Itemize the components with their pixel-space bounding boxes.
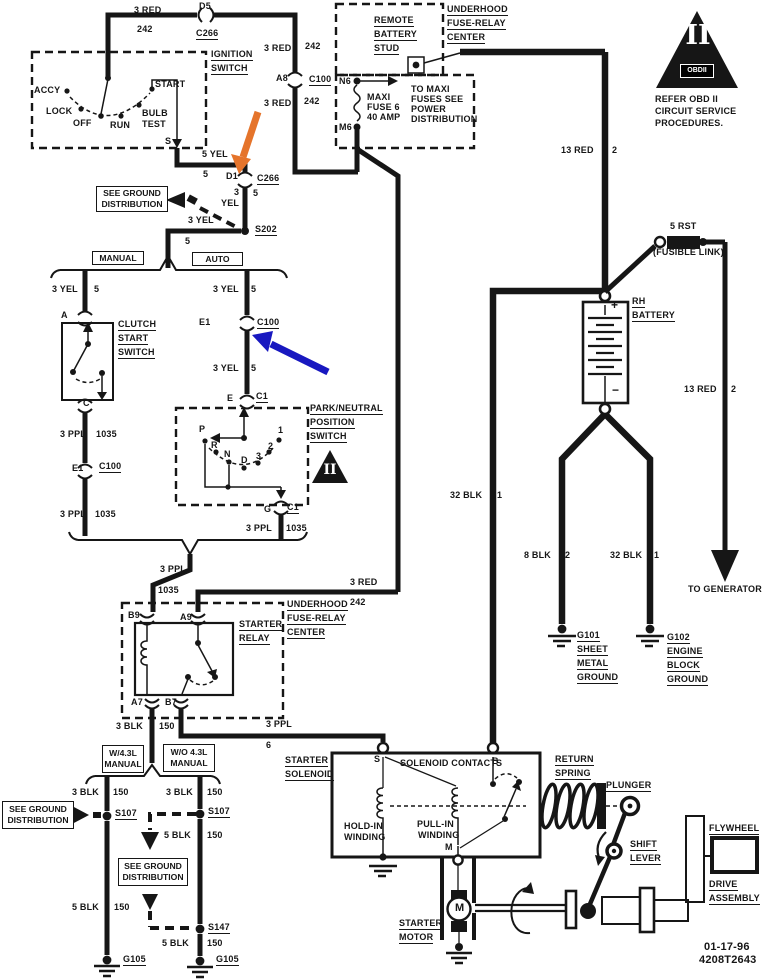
wire-2-2: 2 bbox=[731, 384, 736, 394]
lever-label-1: SHIFT bbox=[630, 839, 657, 851]
wire-242-top: 242 bbox=[137, 24, 153, 34]
wire-150-a7: 150 bbox=[159, 721, 175, 731]
return-spring-plunger bbox=[539, 783, 638, 919]
w-43l-manual-tag: W/4.3LMANUAL bbox=[102, 745, 144, 773]
pn-label-2: POSITION bbox=[310, 417, 355, 429]
conn-e1-auto: E1 bbox=[199, 317, 210, 327]
conn-c100-auto: C100 bbox=[257, 317, 279, 329]
wire-yel-b: YEL bbox=[221, 198, 239, 208]
pn-pos-p: P bbox=[199, 424, 205, 434]
pos-run: RUN bbox=[110, 120, 130, 130]
wire-150-r: 150 bbox=[207, 787, 223, 797]
battery-label-1: RH bbox=[632, 296, 645, 308]
wire-3red-top: 3 RED bbox=[134, 5, 162, 15]
term-n6: N6 bbox=[339, 76, 351, 86]
conn-c266-mid: C266 bbox=[257, 173, 279, 185]
wire-2-1: 2 bbox=[612, 145, 617, 155]
motor-label-1: STARTER bbox=[399, 918, 442, 930]
wire-3ppl-b7: 3 PPL bbox=[266, 719, 292, 729]
pos-lock: LOCK bbox=[46, 106, 72, 116]
wire-3ppl-man2: 3 PPL bbox=[60, 509, 86, 519]
splice-s147: S147 bbox=[208, 922, 230, 934]
wo-43l-manual-tag-line: W/O 4.3L bbox=[171, 747, 208, 758]
pn-label-3: SWITCH bbox=[310, 431, 347, 443]
pn-pos-3: 3 bbox=[256, 451, 261, 461]
conn-d1: D1 bbox=[226, 171, 238, 181]
g101-label-4: GROUND bbox=[577, 672, 618, 684]
wire-5-a: 5 bbox=[203, 169, 208, 179]
wire-3-b: 3 bbox=[234, 187, 239, 197]
term-m6: M6 bbox=[339, 122, 352, 132]
wire-3yel-auto1: 3 YEL bbox=[213, 284, 239, 294]
clutch-label-1: CLUTCH bbox=[118, 319, 156, 331]
ignition-label-2: SWITCH bbox=[211, 63, 248, 75]
ground-g105-l: G105 bbox=[123, 954, 146, 966]
splice-s202: S202 bbox=[255, 224, 277, 236]
auto-tag: AUTO bbox=[192, 252, 243, 266]
term-e-pn: E bbox=[227, 393, 233, 403]
battery-minus: − bbox=[612, 385, 619, 395]
wire-3ppl-merge: 3 PPL bbox=[160, 564, 186, 574]
obd-text-1: REFER OBD II bbox=[655, 94, 718, 104]
drive-label-1: DRIVE bbox=[709, 879, 738, 891]
note-maxi-4: DISTRIBUTION bbox=[411, 114, 477, 124]
holdin-label-2: WINDING bbox=[344, 832, 385, 842]
ufrc-top-2: FUSE-RELAY bbox=[447, 18, 506, 30]
obd-roman-numeral: II bbox=[683, 20, 713, 51]
wire-32blk-g102: 32 BLK bbox=[610, 550, 642, 560]
wire-1035-pn: 1035 bbox=[286, 523, 307, 533]
pos-start: START bbox=[155, 79, 185, 89]
wire-3yel-man: 3 YEL bbox=[52, 284, 78, 294]
ufrc-top-3: CENTER bbox=[447, 32, 485, 44]
conn-c266-top: C266 bbox=[196, 28, 218, 40]
see-ground-distribution-left-line: DISTRIBUTION bbox=[7, 815, 68, 826]
wire-242-3: 242 bbox=[304, 96, 320, 106]
battery-label-2: BATTERY bbox=[632, 310, 675, 322]
relay-label-1: STARTER bbox=[239, 619, 282, 631]
stud-label-2: BATTERY bbox=[374, 29, 417, 41]
wire-3red-2: 3 RED bbox=[264, 43, 292, 53]
motor-m: M bbox=[455, 903, 464, 913]
wire-1035-man1: 1035 bbox=[96, 429, 117, 439]
solenoid-label-1: STARTER bbox=[285, 755, 328, 767]
wire-150-r1: 150 bbox=[207, 830, 223, 840]
pn-label-1: PARK/NEUTRAL bbox=[310, 403, 383, 415]
obd-badge: OBDII bbox=[680, 64, 714, 78]
fuse-label-3: 40 AMP bbox=[367, 112, 400, 122]
footer-date: 01-17-96 bbox=[704, 942, 750, 952]
see-ground-distribution-left-line: SEE GROUND bbox=[9, 804, 67, 815]
g102-label-1: G102 bbox=[667, 632, 690, 644]
term-a7: A7 bbox=[131, 697, 143, 707]
wire-1-b: 1 bbox=[497, 490, 502, 500]
term-g-pn: G bbox=[264, 504, 271, 514]
wire-1035-man2: 1035 bbox=[95, 509, 116, 519]
motor-label-2: MOTOR bbox=[399, 932, 433, 944]
lever-label-2: LEVER bbox=[630, 853, 661, 865]
wire-5-s202: 5 bbox=[185, 236, 190, 246]
term-a-clutch: A bbox=[61, 310, 68, 320]
manual-tag: MANUAL bbox=[92, 251, 144, 265]
wire-242-mid: 242 bbox=[350, 597, 366, 607]
wire-3ppl-man1: 3 PPL bbox=[60, 429, 86, 439]
dashed-boxes bbox=[32, 4, 474, 718]
wire-3yel-s202: 3 YEL bbox=[188, 215, 214, 225]
see-ground-distribution-bottom: SEE GROUNDDISTRIBUTION bbox=[118, 858, 188, 886]
wire-5rst: 5 RST bbox=[670, 221, 697, 231]
wire-2-g101: 2 bbox=[565, 550, 570, 560]
conn-c1-bot: C1 bbox=[287, 502, 299, 514]
footer-code: 4208T2643 bbox=[699, 955, 756, 965]
obd-text-2: CIRCUIT SERVICE bbox=[655, 106, 736, 116]
wire-5-b: 5 bbox=[253, 188, 258, 198]
starter-solenoid bbox=[332, 753, 540, 876]
wire-3ppl-pn: 3 PPL bbox=[246, 523, 272, 533]
wire-13red-2: 13 RED bbox=[684, 384, 717, 394]
wire-150-r2: 150 bbox=[207, 938, 223, 948]
to-generator: TO GENERATOR bbox=[688, 584, 762, 594]
pn-pos-d: D bbox=[241, 455, 248, 465]
pos-bulb: BULB bbox=[142, 108, 168, 118]
wire-5blk-r2: 5 BLK bbox=[162, 938, 189, 948]
g102-label-2: ENGINE bbox=[667, 646, 703, 658]
see-ground-distribution-top-line: DISTRIBUTION bbox=[101, 199, 162, 210]
ufrc-label-1: UNDERHOOD bbox=[287, 599, 348, 611]
holdin-label-1: HOLD-IN bbox=[344, 821, 383, 831]
term-m-sol: M bbox=[445, 842, 453, 852]
wire-3red-3: 3 RED bbox=[264, 98, 292, 108]
pn-pos-1: 1 bbox=[278, 425, 283, 435]
see-ground-distribution-left: SEE GROUNDDISTRIBUTION bbox=[2, 801, 74, 829]
wire-3blk-l: 3 BLK bbox=[72, 787, 99, 797]
solenoid-contacts: SOLENOID CONTACTS bbox=[400, 758, 502, 768]
wire-1-g102: 1 bbox=[654, 550, 659, 560]
s202-region bbox=[51, 192, 287, 315]
w-43l-manual-tag-line: W/4.3L bbox=[109, 748, 137, 759]
term-b9: B9 bbox=[128, 610, 140, 620]
auto-tag-line: AUTO bbox=[205, 254, 229, 265]
wiring-svg bbox=[0, 0, 775, 980]
merge-bracket bbox=[69, 532, 307, 612]
g101-label-3: METAL bbox=[577, 658, 608, 670]
pos-test: TEST bbox=[142, 119, 166, 129]
ground-g105-r: G105 bbox=[216, 954, 239, 966]
wire-3blk-r: 3 BLK bbox=[166, 787, 193, 797]
pullin-label-2: WINDING bbox=[418, 830, 459, 840]
wo-43l-manual-tag: W/O 4.3LMANUAL bbox=[163, 744, 215, 772]
spring-label-2: SPRING bbox=[555, 768, 591, 780]
clutch-label-2: START bbox=[118, 333, 148, 345]
see-ground-distribution-top: SEE GROUNDDISTRIBUTION bbox=[96, 186, 168, 212]
drive-label-2: ASSEMBLY bbox=[709, 893, 760, 905]
wire-150-l: 150 bbox=[113, 787, 129, 797]
stud-label-1: REMOTE bbox=[374, 15, 414, 27]
wire-242-2: 242 bbox=[305, 41, 321, 51]
mid-red-feed bbox=[198, 149, 398, 612]
fuse-label-1: MAXI bbox=[367, 92, 390, 102]
wire-5-auto2: 5 bbox=[251, 363, 256, 373]
flywheel-label: FLYWHEEL bbox=[709, 823, 759, 835]
conn-d5: D5 bbox=[199, 1, 211, 11]
manual-tag-line: MANUAL bbox=[99, 253, 136, 264]
term-s-sol: S bbox=[374, 754, 380, 764]
wire-8blk: 8 BLK bbox=[524, 550, 551, 560]
pullin-label-1: PULL-IN bbox=[417, 819, 454, 829]
wire-5yel: 5 YEL bbox=[202, 149, 228, 159]
wire-3blk-a7: 3 BLK bbox=[116, 721, 143, 731]
clutch-label-3: SWITCH bbox=[118, 347, 155, 359]
obd-text-3: PROCEDURES. bbox=[655, 118, 723, 128]
battery-plus: + bbox=[611, 300, 618, 310]
see-ground-distribution-top-line: SEE GROUND bbox=[103, 188, 161, 199]
wire-5-auto1: 5 bbox=[251, 284, 256, 294]
wire-1035-merge: 1035 bbox=[158, 585, 179, 595]
pn-triangle-numeral: II bbox=[316, 462, 344, 478]
wire-32blk-b: 32 BLK bbox=[450, 490, 482, 500]
ignition-label-1: IGNITION bbox=[211, 49, 253, 61]
term-a9: A9 bbox=[180, 612, 192, 622]
blue-arrow bbox=[252, 331, 328, 372]
conn-a8: A8 bbox=[276, 73, 288, 83]
conn-c1-top: C1 bbox=[256, 391, 268, 403]
term-c-clutch: C bbox=[83, 398, 90, 408]
spring-label-1: RETURN bbox=[555, 754, 594, 766]
wire-3yel-auto2: 3 YEL bbox=[213, 363, 239, 373]
stud-label-3: STUD bbox=[374, 43, 399, 55]
pn-pos-2: 2 bbox=[268, 441, 273, 451]
pn-pos-r: R bbox=[211, 440, 218, 450]
wire-3red-mid: 3 RED bbox=[350, 577, 378, 587]
wo-43l-manual-tag-line: MANUAL bbox=[170, 758, 207, 769]
conn-c100-top: C100 bbox=[309, 74, 331, 86]
wire-6-b7: 6 bbox=[266, 740, 271, 750]
g101-label-1: G101 bbox=[577, 630, 600, 642]
conn-c100-man: C100 bbox=[99, 461, 121, 473]
pn-pos-n: N bbox=[224, 449, 231, 459]
term-s-ign: S bbox=[165, 136, 171, 146]
fusible-link: (FUSIBLE LINK) bbox=[653, 247, 724, 257]
wire-150-l1: 150 bbox=[114, 902, 130, 912]
term-b7: B7 bbox=[165, 697, 177, 707]
splice-s107-r: S107 bbox=[208, 806, 230, 818]
note-maxi-3: POWER bbox=[411, 104, 446, 114]
pos-accy: ACCY bbox=[34, 85, 60, 95]
conn-e1-man: E1 bbox=[72, 463, 83, 473]
g101-label-2: SHEET bbox=[577, 644, 608, 656]
solenoid-label-2: SOLENOID bbox=[285, 769, 334, 781]
wire-5blk-l1: 5 BLK bbox=[72, 902, 99, 912]
g102-label-3: BLOCK bbox=[667, 660, 700, 672]
wire-5blk-r1: 5 BLK bbox=[164, 830, 191, 840]
note-maxi-1: TO MAXI bbox=[411, 84, 450, 94]
wire-5-man: 5 bbox=[94, 284, 99, 294]
ufrc-label-2: FUSE-RELAY bbox=[287, 613, 346, 625]
wire-13red-1: 13 RED bbox=[561, 145, 594, 155]
note-maxi-2: FUSES SEE bbox=[411, 94, 463, 104]
term-b-sol: B bbox=[492, 756, 499, 766]
ufrc-top-1: UNDERHOOD bbox=[447, 4, 508, 16]
g102-label-4: GROUND bbox=[667, 674, 708, 686]
w-43l-manual-tag-line: MANUAL bbox=[104, 759, 141, 770]
fuse-label-2: FUSE 6 bbox=[367, 102, 400, 112]
see-ground-distribution-bottom-line: SEE GROUND bbox=[124, 861, 182, 872]
pos-off: OFF bbox=[73, 118, 92, 128]
ufrc-label-3: CENTER bbox=[287, 627, 325, 639]
relay-label-2: RELAY bbox=[239, 633, 270, 645]
see-ground-distribution-bottom-line: DISTRIBUTION bbox=[122, 872, 183, 883]
plunger-label: PLUNGER bbox=[606, 780, 651, 792]
splice-s107-l: S107 bbox=[115, 808, 137, 820]
wiring-diagram-page: 3 RED242D5C2663 RED242A8C1003 RED242IGNI… bbox=[0, 0, 775, 980]
